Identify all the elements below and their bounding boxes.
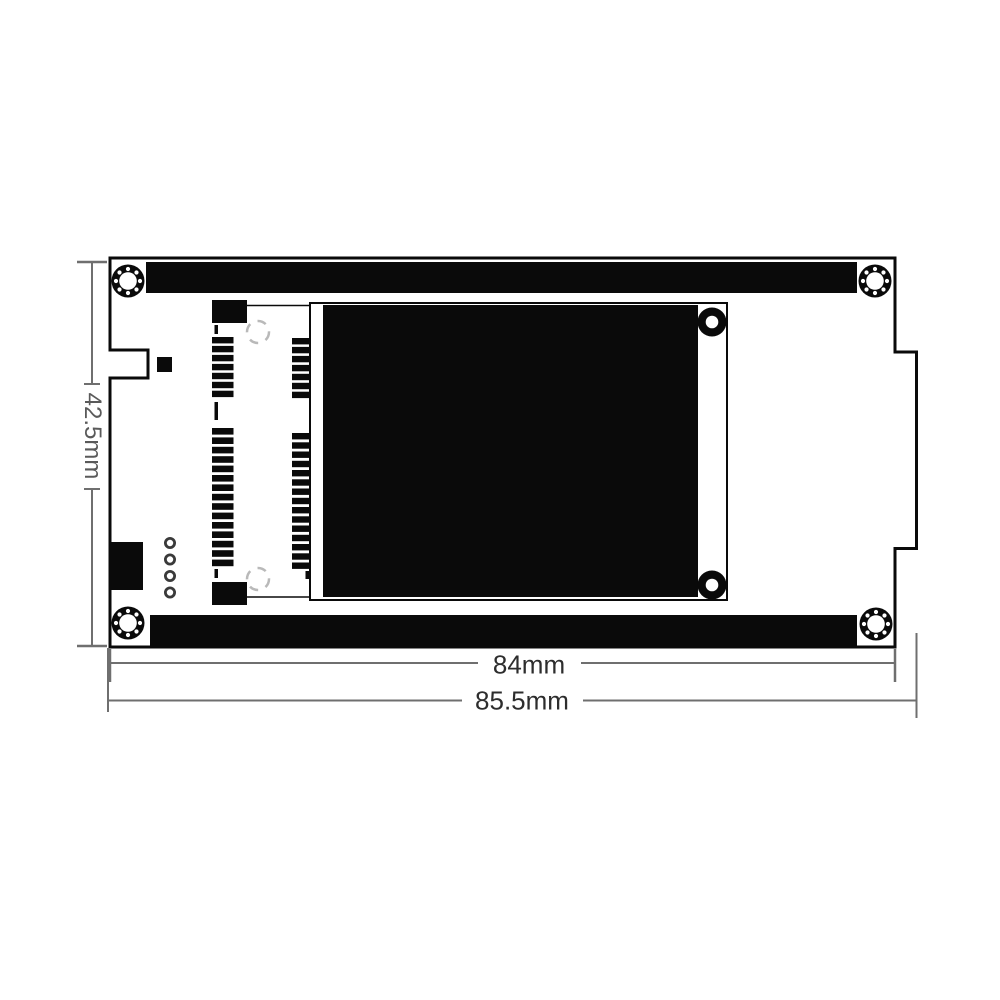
pcb-dimension-diagram: 42.5mm 84mm 85.5mm [0,0,1000,1000]
castellated-pad [212,494,234,501]
castellated-pad [292,442,311,448]
castellated-pad [212,550,234,557]
castellated-pad [292,507,311,513]
castellated-pad [292,356,311,362]
castellated-pad [212,522,234,529]
castellated-pad [212,355,234,361]
castellated-pad [212,428,234,435]
bottom-pin-header [150,615,857,646]
castellated-pad [292,365,311,371]
castellated-pad [212,364,234,370]
castellated-pad [212,484,234,491]
overall-width-dimension-label: 85.5mm [475,686,569,717]
castellated-pad [292,461,311,467]
esp-module-connector-top [212,300,247,323]
mounting-hole-top-left [112,265,145,298]
castellated-pad [212,437,234,444]
display-mounting-hole-bottom [698,571,727,600]
component-pad [157,357,172,372]
castellated-pad [212,337,234,343]
castellated-pad [212,373,234,379]
castellated-pad [212,346,234,352]
esp-module-connector-bottom [212,582,247,605]
castellated-pad [292,489,311,495]
display-mounting-hole-top [698,308,727,337]
top-pin-header [146,262,857,293]
castellated-pad [292,526,311,532]
castellated-pad [212,391,234,397]
height-dimension-label: 42.5mm [78,393,106,480]
castellated-pad [292,544,311,550]
castellated-pad [292,563,311,569]
board-width-dimension-label: 84mm [493,650,565,681]
castellated-pad [212,466,234,473]
castellated-pad [212,456,234,463]
castellated-pad [292,433,311,439]
castellated-pad [292,383,311,389]
castellated-pad [292,347,311,353]
castellated-pad [212,531,234,538]
castellated-pad [212,560,234,567]
castellated-pad [212,475,234,482]
castellated-pad [292,470,311,476]
castellated-pad [212,503,234,510]
diagram-canvas [0,0,1000,1000]
mounting-hole-bottom-left [112,607,145,640]
castellated-pad [212,541,234,548]
castellated-pad [212,382,234,388]
castellated-pad [292,338,311,344]
castellated-pad [292,479,311,485]
mounting-hole-bottom-right [860,608,893,641]
display-screen [323,305,698,597]
castellated-pad [292,498,311,504]
castellated-pad [292,374,311,380]
castellated-pad [212,447,234,454]
castellated-pad [212,513,234,520]
castellated-pad [292,392,311,398]
castellated-pad [292,553,311,559]
castellated-pad [292,516,311,522]
castellated-pad [292,452,311,458]
castellated-pad [292,535,311,541]
usb-connector [110,542,143,590]
mounting-hole-top-right [859,265,892,298]
